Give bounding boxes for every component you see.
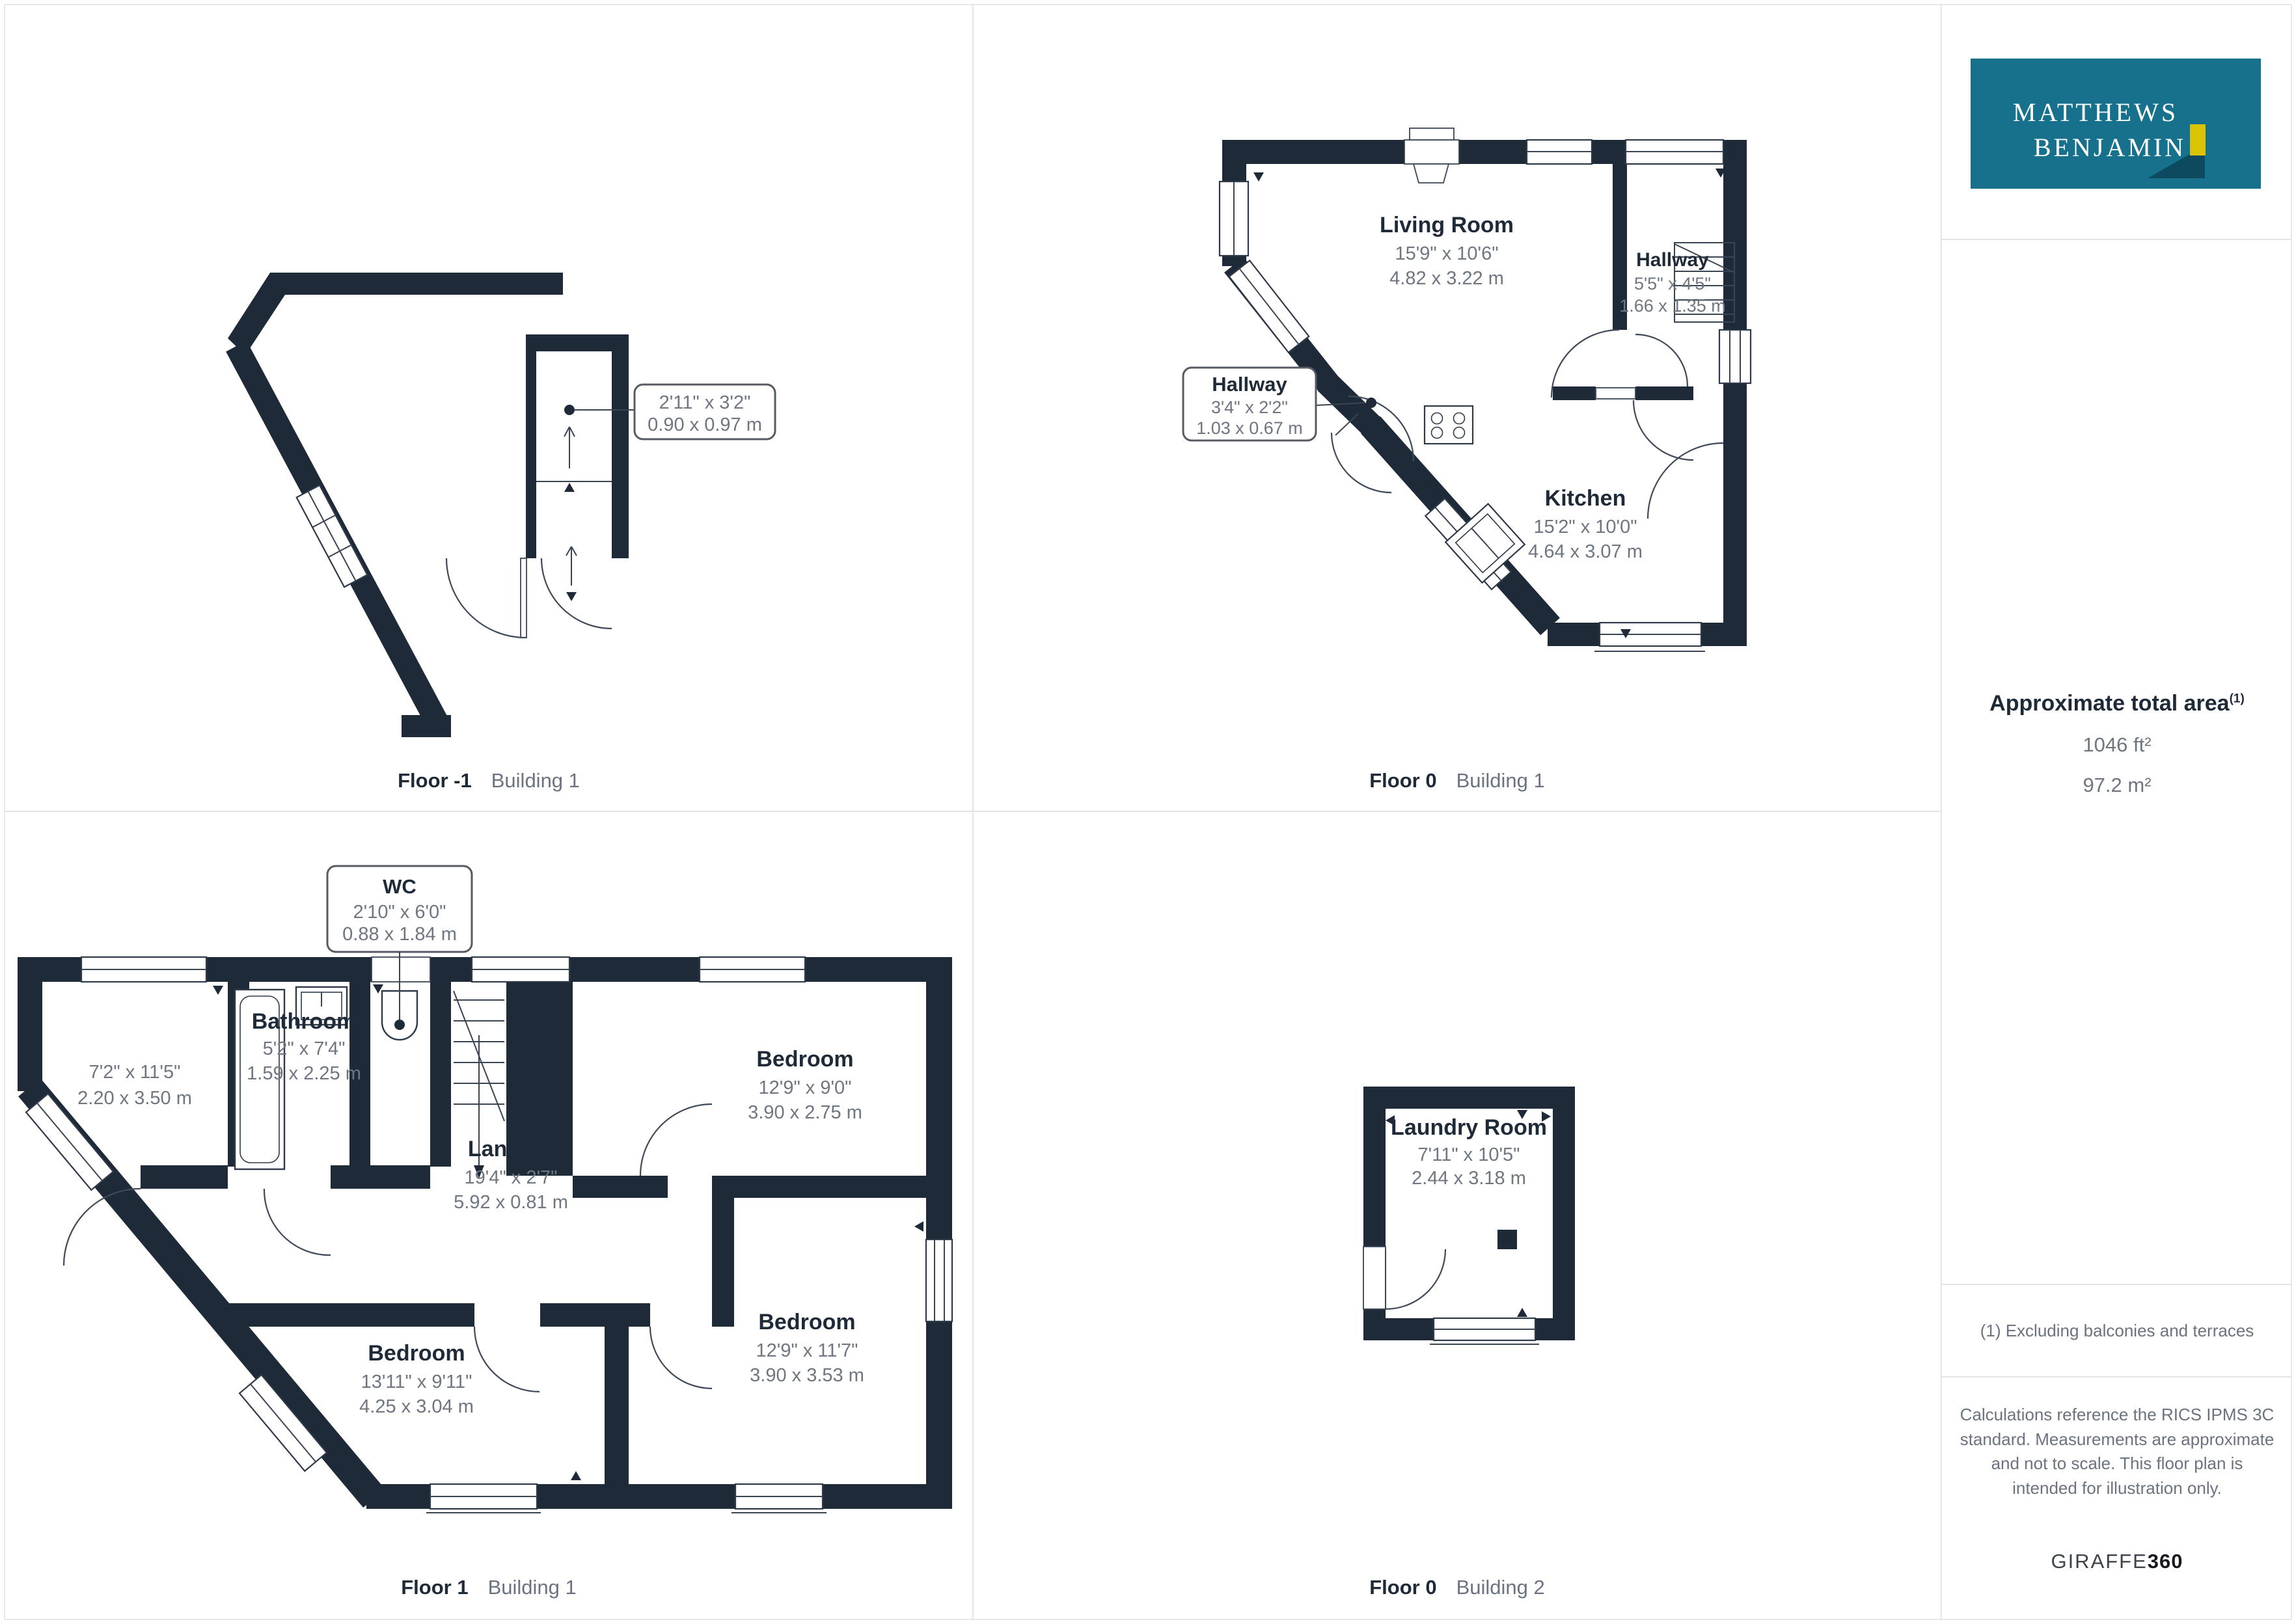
area-title-footref: (1): [2230, 692, 2245, 706]
horizontal-divider: [4, 811, 1942, 812]
wall-arrows: [1386, 1110, 1551, 1317]
footnote: (1) Excluding balconies and terraces: [1942, 1321, 2292, 1341]
sidebar-divider-1: [1942, 239, 2292, 240]
room-dims-ft: 7'2" x 11'5": [89, 1062, 181, 1083]
building-label: Building 1: [1456, 769, 1545, 792]
room-dims-m: 5.92 x 0.81 m: [454, 1192, 568, 1213]
room-dims-ft: 5'5" x 4'5": [1634, 274, 1711, 293]
room-name: Hallway: [1212, 373, 1287, 396]
window: [1430, 1318, 1539, 1344]
caption-floor-minus1: Floor -1 Building 1: [5, 769, 972, 792]
company-logo: MATTHEWS BENJAMIN: [1971, 59, 2261, 189]
appliance-icon: [1497, 1230, 1517, 1249]
room-dims-m: 4.25 x 3.04 m: [359, 1396, 474, 1417]
room-name: Kitchen: [1545, 486, 1626, 511]
floorplan-floor-minus1: 2'11" x 3'2" 0.90 x 0.97 m: [215, 252, 800, 773]
room-name: WC: [383, 875, 417, 898]
room-dims-ft: 2'11" x 3'2": [659, 392, 751, 413]
room-dims-ft: 2'10" x 6'0": [353, 902, 446, 923]
room-label-living: Living Room 15'9" x 10'6" 4.82 x 3.22 m: [1380, 213, 1514, 289]
room-label-bedroom-top: Bedroom 12'9" x 9'0" 3.90 x 2.75 m: [748, 1047, 862, 1123]
room-label-bedroom-right: Bedroom 12'9" x 11'7" 3.90 x 3.53 m: [750, 1310, 864, 1386]
room-dims-m: 0.88 x 1.84 m: [342, 924, 457, 945]
logo-door-icon: [2190, 124, 2206, 156]
sidebar-divider-3: [1942, 1376, 2292, 1377]
room-dims-ft: 15'2" x 10'0": [1533, 517, 1637, 537]
caption-floor1-b1: Floor 1 Building 1: [5, 1576, 972, 1599]
room-dims-ft: 12'9" x 11'7": [756, 1340, 858, 1361]
room-label-hallway: Hallway 5'5" x 4'5" 1.66 x 1.35 m: [1619, 249, 1726, 316]
vertical-divider-1: [972, 4, 974, 1620]
room-name: Bedroom: [368, 1341, 465, 1366]
room-name: Hallway: [1636, 249, 1709, 271]
room-dims-ft: 13'11" x 9'11": [361, 1372, 472, 1392]
room-label-bedroom-left: Bedroom 13'11" x 9'11" 4.25 x 3.04 m: [359, 1341, 474, 1417]
area-summary: Approximate total area(1) 1046 ft² 97.2 …: [1942, 691, 2292, 797]
room-name: Laundry Room: [1391, 1115, 1547, 1140]
walls: [18, 957, 952, 1509]
brand-suffix: 360: [2148, 1550, 2183, 1573]
door-arc: [446, 547, 612, 638]
giraffe360-brand: GIRAFFE360: [1942, 1550, 2292, 1573]
caption-floor0-b2: Floor 0 Building 2: [974, 1576, 1941, 1599]
room-label-landing: Landing 19'4" x 2'7" 5.92 x 0.81 m: [454, 1137, 568, 1213]
disclaimer: Calculations reference the RICS IPMS 3C …: [1959, 1403, 2275, 1501]
room-dims-m: 4.64 x 3.07 m: [1528, 541, 1643, 562]
logo-line1: MATTHEWS: [2013, 98, 2178, 127]
room-name: Bedroom: [758, 1310, 855, 1334]
area-title: Approximate total area(1): [1942, 691, 2292, 716]
floorplan-floor0-building2: Laundry Room 7'11" x 10'5" 2.44 x 3.18 m: [1357, 1079, 1581, 1359]
room-callout-hallway: Hallway 3'4" x 2'2" 1.03 x 0.67 m: [1183, 368, 1376, 440]
room-dims-m: 3.90 x 2.75 m: [748, 1102, 862, 1123]
floorplan-sheet: 2'11" x 3'2" 0.90 x 0.97 m: [0, 0, 2296, 1624]
walls: [228, 273, 629, 737]
room-dims-m: 1.03 x 0.67 m: [1196, 418, 1303, 438]
room-dims-ft: 12'9" x 9'0": [759, 1077, 852, 1098]
room-dims-m: 3.90 x 3.53 m: [750, 1365, 864, 1386]
floor-label: Floor 1: [401, 1576, 468, 1599]
logo-line2: BENJAMIN: [2034, 133, 2186, 162]
room-dims-ft: 3'4" x 2'2": [1211, 398, 1288, 417]
room-label-bathroom: Bathroom 5'2" x 7'4" 1.59 x 2.25 m: [247, 1009, 361, 1084]
door-arcs: [1332, 330, 1723, 519]
room-dims-ft: 5'2" x 7'4": [263, 1038, 346, 1059]
room-dims-m: 4.82 x 3.22 m: [1389, 268, 1504, 289]
area-title-text: Approximate total area: [1989, 691, 2229, 716]
building-label: Building 1: [491, 769, 580, 792]
room-dims-ft: 7'11" x 10'5": [1418, 1144, 1520, 1165]
room-dims-m: 0.90 x 0.97 m: [648, 414, 762, 435]
caption-floor0-b1: Floor 0 Building 1: [974, 769, 1941, 792]
floor-label: Floor 0: [1369, 1576, 1436, 1599]
room-dims-m: 2.44 x 3.18 m: [1412, 1168, 1526, 1189]
area-value-ft: 1046 ft²: [1942, 733, 2292, 757]
stove-icon: [1425, 406, 1473, 444]
room-dims-m: 2.20 x 3.50 m: [77, 1088, 192, 1109]
floor-label: Floor 0: [1369, 769, 1436, 792]
floor-label: Floor -1: [398, 769, 472, 792]
building-label: Building 2: [1456, 1576, 1545, 1599]
sidebar-divider-2: [1942, 1284, 2292, 1285]
window: [1229, 260, 1309, 352]
door-arc: [1363, 1247, 1445, 1309]
vertical-divider-sidebar: [1941, 4, 1942, 1620]
room-label-laundry: Laundry Room 7'11" x 10'5" 2.44 x 3.18 m: [1391, 1115, 1547, 1189]
room-callout: 2'11" x 3'2" 0.90 x 0.97 m: [564, 385, 775, 439]
room-dims-m: 1.66 x 1.35 m: [1619, 296, 1726, 316]
room-name: Bedroom: [756, 1047, 853, 1072]
room-name: Landing: [468, 1137, 554, 1161]
room-dims-ft: 15'9" x 10'6": [1395, 243, 1498, 264]
room-dims-m: 1.59 x 2.25 m: [247, 1063, 361, 1084]
floorplan-floor0-building1: Living Room 15'9" x 10'6" 4.82 x 3.22 m …: [1165, 127, 1790, 699]
room-name: Living Room: [1380, 213, 1514, 237]
area-value-m: 97.2 m²: [1942, 774, 2292, 797]
floorplan-floor1-building1: WC 2'10" x 6'0" 0.88 x 1.84 m 7'2" x 11'…: [10, 862, 966, 1519]
stairs-icon: [536, 427, 612, 492]
building-label: Building 1: [488, 1576, 577, 1599]
brand-name: GIRAFFE: [2051, 1550, 2147, 1573]
room-name: Bathroom: [252, 1009, 357, 1034]
room-label-kitchen: Kitchen 15'2" x 10'0" 4.64 x 3.07 m: [1528, 486, 1643, 562]
room-dims-ft: 19'4" x 2'7": [465, 1167, 558, 1188]
room-label-room: 7'2" x 11'5" 2.20 x 3.50 m: [77, 1062, 192, 1109]
